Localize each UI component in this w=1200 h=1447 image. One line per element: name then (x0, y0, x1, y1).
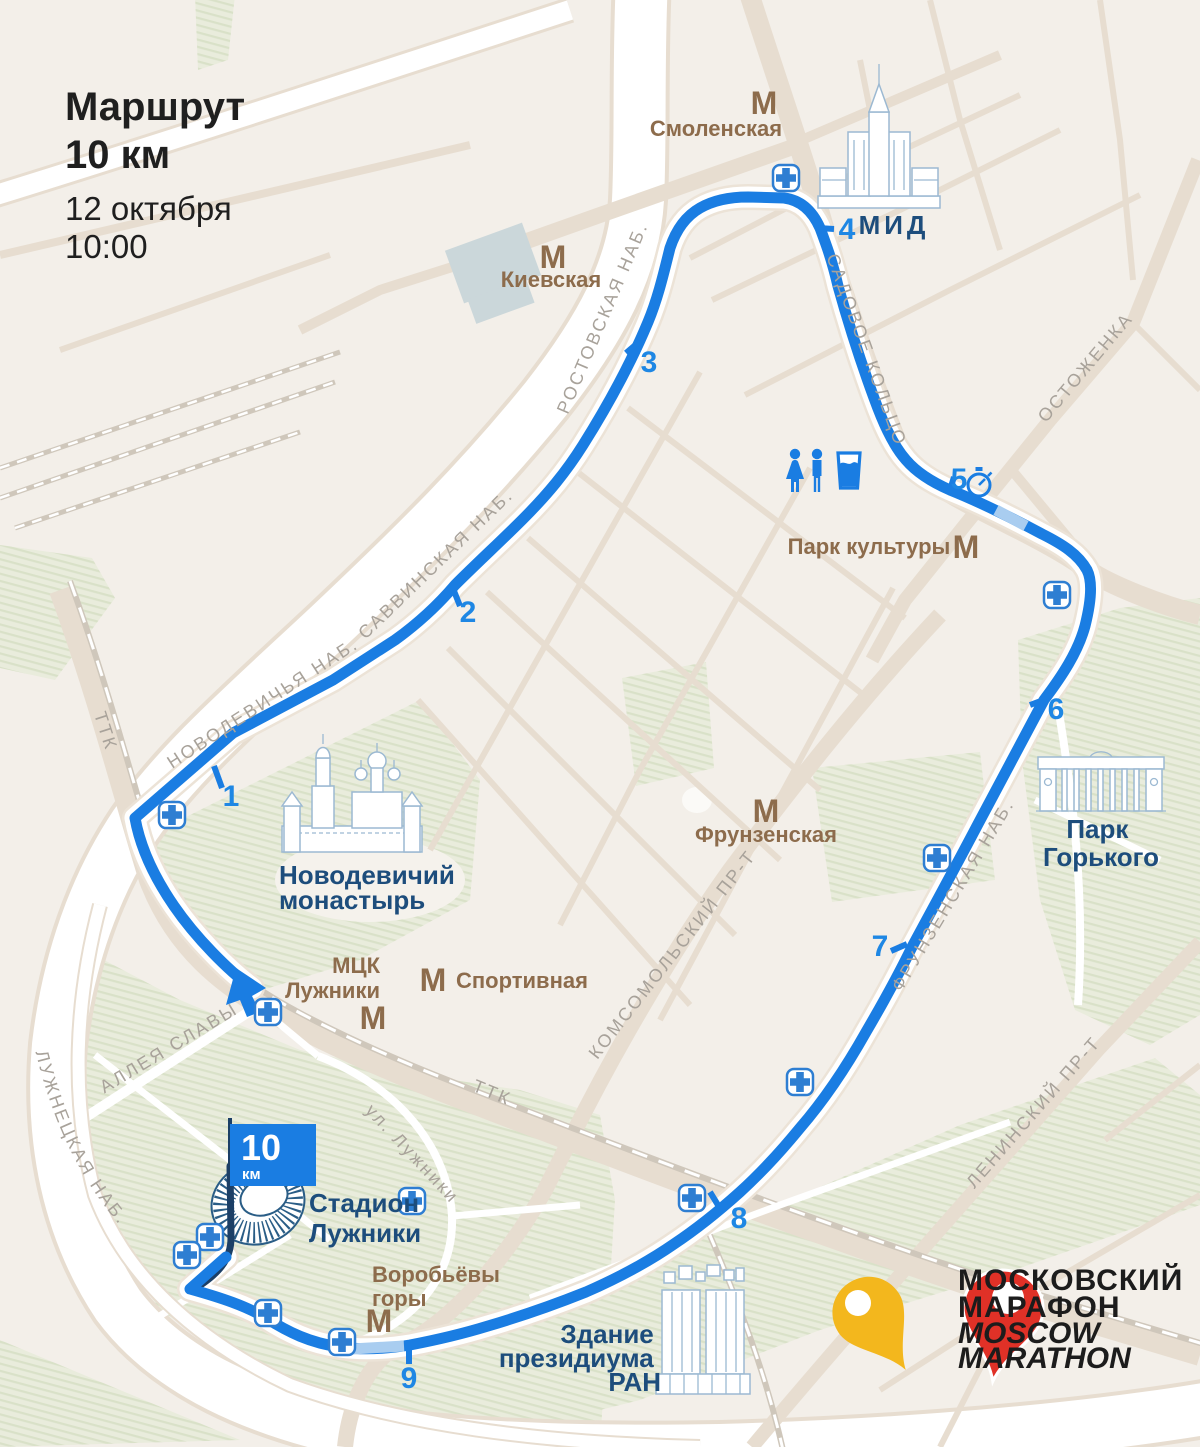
km-marker-number: 3 (641, 346, 658, 379)
medical-cross-icon (174, 1242, 200, 1268)
route-map: 123456789 (0, 0, 1200, 1447)
svg-text:10:00: 10:00 (65, 228, 148, 265)
water-cup-icon (838, 453, 860, 488)
metro-icon: М (420, 962, 447, 998)
medical-cross-icon (255, 999, 281, 1025)
medical-cross-icon (787, 1069, 813, 1095)
medical-cross-icon (197, 1224, 223, 1250)
km-marker-5: 5 (949, 463, 967, 496)
medical-cross-icon (159, 802, 185, 828)
medical-cross-icon (329, 1329, 355, 1355)
stadium-label: Стадион Лужники (309, 1188, 426, 1248)
medical-cross-icon (924, 845, 950, 871)
metro-sportivnaya: МСпортивная (420, 962, 588, 998)
metro-icon: М (360, 1000, 387, 1036)
km-marker-number: 4 (839, 213, 856, 246)
km-marker-number: 1 (223, 780, 240, 813)
medical-cross-icon (1044, 582, 1070, 608)
metro-station-label: Спортивная (456, 968, 588, 993)
metro-station-label: Фрунзенская (695, 822, 837, 847)
km-marker-number: 9 (401, 1362, 418, 1395)
metro-icon: М (953, 529, 980, 565)
svg-text:10: 10 (241, 1127, 281, 1168)
svg-text:Маршрут: Маршрут (65, 85, 245, 129)
gorky-park-gate-illustration (1036, 752, 1166, 811)
metro-station-label: Лужники (285, 978, 380, 1003)
finish-flag: 10 км (230, 1124, 316, 1186)
svg-text:10 км: 10 км (65, 133, 170, 177)
km-marker-number: 7 (872, 930, 889, 963)
svg-text:км: км (242, 1166, 261, 1183)
metro-station-label: Воробьёвы (372, 1262, 500, 1287)
km-marker-number: 2 (460, 596, 477, 629)
medical-cross-icon (679, 1185, 705, 1211)
metro-station-label: горы (372, 1286, 427, 1311)
svg-text:MARATHON: MARATHON (958, 1342, 1132, 1375)
metro-station-label: Парк культуры (788, 534, 951, 559)
metro-station-label: МЦК (332, 953, 380, 978)
metro-station-label: Киевская (501, 267, 601, 292)
medical-cross-icon (773, 165, 799, 191)
mid-label: МИД (859, 210, 930, 240)
medical-cross-icon (255, 1300, 281, 1326)
metro-station-label: Смоленская (650, 116, 782, 141)
km-marker-number: 5 (951, 463, 968, 496)
km-marker-number: 8 (731, 1202, 748, 1235)
km-marker-number: 6 (1048, 693, 1065, 726)
svg-text:12 октября: 12 октября (65, 190, 232, 227)
